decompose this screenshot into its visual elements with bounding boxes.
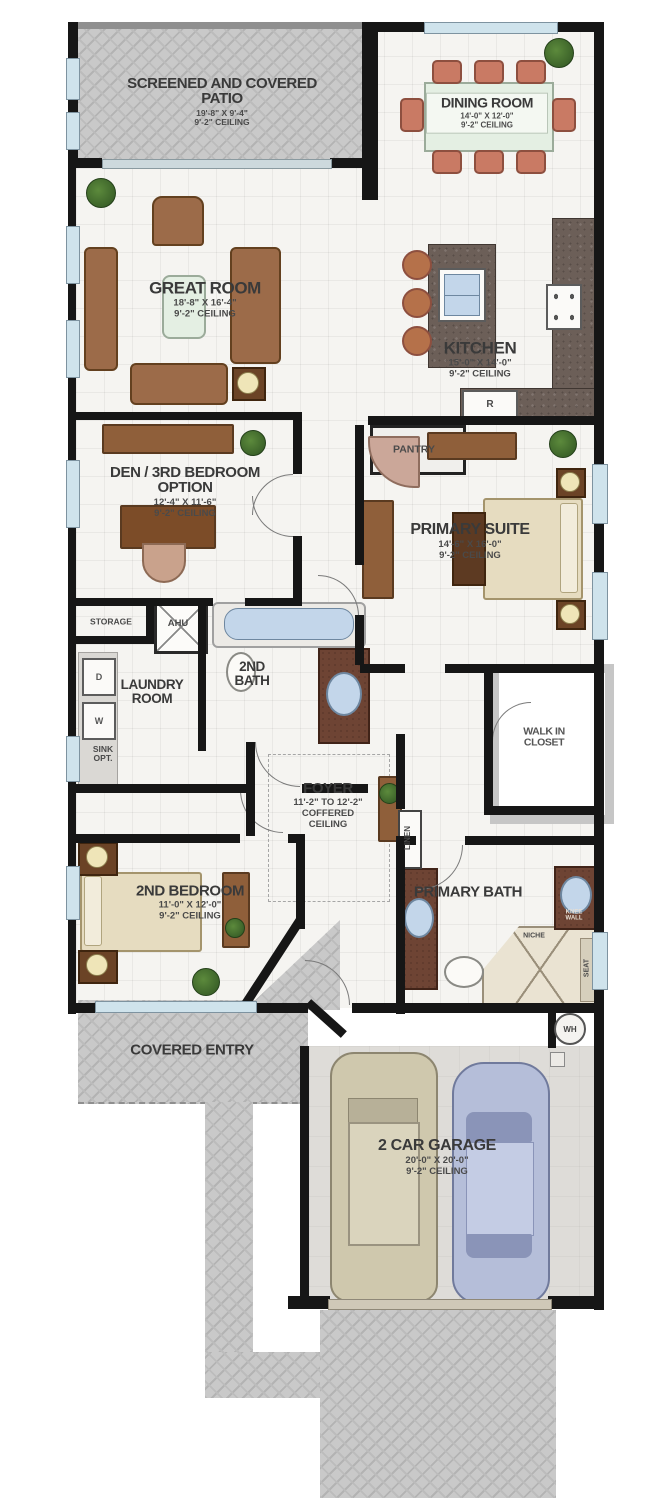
bedroom2-lamp — [86, 846, 108, 868]
driveway — [320, 1310, 556, 1498]
refrigerator-label: R — [486, 400, 493, 411]
patio-window-2 — [66, 112, 80, 150]
garage-label: 2 CAR GARAGE 20'-0" X 20'-0" 9'-2" CEILI… — [378, 1138, 496, 1178]
wall-primary-bottom-a — [360, 664, 405, 673]
dining-ceiling: 9'-2" CEILING — [427, 121, 547, 130]
primary-lamp — [560, 472, 580, 492]
den-ceiling: 9'-2" CEILING — [95, 508, 275, 519]
patio-window-1 — [66, 58, 80, 100]
second-bath-name: 2ND BATH — [220, 660, 284, 688]
primary-bath-name: PRIMARY BATH — [413, 884, 523, 899]
laundry-name: LAUNDRY ROOM — [105, 678, 200, 706]
wall-den-right-a — [293, 412, 302, 474]
dining-chair — [400, 98, 424, 132]
wall-closet-bottom — [484, 806, 603, 815]
primary-dresser — [427, 432, 517, 460]
den-window — [66, 460, 80, 528]
wall-front-b — [352, 1003, 602, 1013]
plant — [86, 178, 116, 208]
bedroom2-pillows — [84, 876, 102, 946]
great-room-ceiling: 9'-2" CEILING — [149, 310, 261, 321]
wall-bedroom-right — [296, 834, 305, 929]
car-sedan-rear-window — [466, 1234, 532, 1258]
dining-chair — [432, 150, 462, 174]
primary-console — [362, 500, 394, 599]
primarybath-window — [592, 932, 608, 990]
patio-sliding-door — [102, 159, 332, 169]
patio-label: SCREENED AND COVERED PATIO 19'-8" X 9'-4… — [117, 76, 327, 128]
wall-den-top — [68, 412, 301, 420]
primarybath-sink-left — [404, 898, 434, 938]
foyer-label: FOYER 11'-2" TO 12'-2" COFFERED CEILING — [273, 781, 383, 831]
den-credenza — [102, 424, 234, 454]
great-window-1 — [66, 226, 80, 284]
walk-in-closet-name: WALK IN CLOSET — [514, 726, 574, 747]
wall-laundry-bottom — [68, 784, 206, 793]
dryer-label: D — [96, 672, 103, 682]
great-sofa-left — [84, 247, 118, 371]
ahu-label: AHU — [168, 619, 189, 629]
wall-patio-stub-right — [330, 158, 378, 168]
kitchen-sink — [438, 268, 486, 322]
patio-screen-wall — [76, 22, 366, 29]
dining-chair — [474, 60, 504, 84]
great-lamp — [237, 372, 259, 394]
great-window-2 — [66, 320, 80, 378]
washer-label: W — [95, 716, 104, 726]
den-name: DEN / 3RD BEDROOM OPTION — [95, 465, 275, 496]
dining-window — [424, 22, 558, 34]
dining-dims: 14'-0" X 12'-0" — [427, 112, 547, 121]
primary-suite-ceiling: 9'-2" CEILING — [410, 551, 529, 562]
great-armchair — [152, 196, 204, 246]
dining-chair — [552, 98, 576, 132]
patio-ceiling: 9'-2" CEILING — [117, 118, 327, 128]
dining-chair — [516, 150, 546, 174]
great-sofa-bottom — [130, 363, 228, 405]
wall-patio-dining — [362, 22, 378, 200]
wall-garage-left — [300, 1046, 309, 1302]
primarybath-sink-right — [560, 876, 592, 914]
garage-name: 2 CAR GARAGE — [378, 1138, 496, 1154]
wall-hall-primary-a — [355, 425, 364, 565]
plant — [544, 38, 574, 68]
plant — [192, 968, 220, 996]
pantry-label: PANTRY — [393, 444, 435, 455]
bedroom2-lamp — [86, 954, 108, 976]
den-label: DEN / 3RD BEDROOM OPTION 12'-4" X 11'-6"… — [95, 465, 275, 519]
wall-den-bottom-a — [68, 598, 213, 606]
wall-bedroom-top-a — [68, 834, 240, 843]
garage-ceiling: 9'-2" CEILING — [378, 1167, 496, 1178]
storage-label: STORAGE — [90, 618, 132, 627]
walkway-horizontal — [205, 1352, 322, 1398]
sink-basin — [444, 274, 480, 316]
wall-hall-primary-b — [355, 615, 364, 665]
wall-closet-left — [484, 673, 493, 813]
kitchen-stool — [402, 288, 432, 318]
garage-door — [328, 1299, 552, 1310]
washer: W — [82, 702, 116, 740]
primary-bath-label: PRIMARY BATH — [413, 884, 523, 899]
primary-window-2 — [592, 572, 608, 640]
kitchen-name: KITCHEN — [444, 339, 517, 356]
primary-suite-label: PRIMARY SUITE 14'-6" X 16'-0" 9'-2" CEIL… — [410, 522, 529, 562]
covered-entry-label: COVERED ENTRY — [130, 1042, 253, 1057]
floor-plan: R D W WH — [0, 0, 669, 1500]
wall-garage-stub-left — [288, 1296, 330, 1309]
great-room-name: GREAT ROOM — [149, 279, 261, 296]
wall-kitchen-bottom — [368, 416, 602, 425]
wall-storage-bottom — [76, 636, 154, 644]
toilet-primary-bath — [444, 956, 484, 988]
wall-primarybath-left — [396, 838, 405, 1014]
wall-foyer-right-a — [396, 734, 405, 809]
dining-label: DINING ROOM 14'-0" X 12'-0" 9'-2" CEILIN… — [426, 93, 548, 134]
laundry-window — [66, 736, 80, 782]
wall-foyer-left — [246, 742, 255, 836]
wall-primarybath-top-b — [465, 836, 603, 845]
wall-den-bottom-b — [245, 598, 301, 606]
kitchen-stove — [546, 284, 582, 330]
dining-name: DINING ROOM — [427, 96, 547, 110]
column-post — [550, 1052, 565, 1067]
laundry-label: LAUNDRY ROOM — [105, 678, 200, 706]
kitchen-label: KITCHEN 15'-0" X 14'-0" 9'-2" CEILING — [444, 339, 517, 380]
seat-label: SEAT — [583, 959, 590, 977]
great-room-label: GREAT ROOM 18'-8" X 16'-4" 9'-2" CEILING — [149, 279, 261, 320]
plant — [240, 430, 266, 456]
dining-chair — [516, 60, 546, 84]
kitchen-stool — [402, 326, 432, 356]
dining-chair — [474, 150, 504, 174]
wall-primary-bottom-b — [445, 664, 603, 673]
second-bedroom-ceiling: 9'-2" CEILING — [136, 912, 244, 923]
water-heater: WH — [554, 1013, 586, 1045]
primary-bed-pillows — [560, 503, 578, 593]
wall-garage-stub-right — [548, 1296, 602, 1309]
sink-2nd-bath — [326, 672, 362, 716]
bedroom2-window-front — [95, 1001, 257, 1013]
kitchen-ceiling: 9'-2" CEILING — [444, 370, 517, 381]
covered-entry-name: COVERED ENTRY — [130, 1042, 253, 1057]
patio-name: SCREENED AND COVERED PATIO — [117, 76, 327, 107]
wall-den-right-b — [293, 536, 302, 606]
knee-wall-label: KNEE WALL — [560, 910, 588, 923]
foyer-name: FOYER — [273, 781, 383, 796]
primary-suite-name: PRIMARY SUITE — [410, 522, 529, 538]
plant — [549, 430, 577, 458]
linen-label: LINEN — [404, 826, 412, 850]
walk-in-closet-label: WALK IN CLOSET — [514, 726, 574, 747]
primary-window-1 — [592, 464, 608, 524]
dining-chair — [432, 60, 462, 84]
second-bath-label: 2ND BATH — [220, 660, 284, 688]
kitchen-stool — [402, 250, 432, 280]
water-heater-label: WH — [563, 1025, 576, 1034]
sink-opt-label: SINK OPT. — [86, 745, 120, 763]
second-bedroom-label: 2ND BEDROOM 11'-0" X 12'-0" 9'-2" CEILIN… — [136, 883, 244, 922]
foyer-ceiling: COFFERED CEILING — [293, 809, 363, 831]
den-dims: 12'-4" X 11'-6" — [95, 497, 275, 508]
car-suv-windshield — [348, 1098, 418, 1124]
wall-patio-stub-left — [68, 158, 102, 168]
primary-lamp — [560, 604, 580, 624]
bedroom2-window-left — [66, 866, 80, 920]
niche-label: NICHE — [523, 932, 545, 939]
second-bedroom-name: 2ND BEDROOM — [136, 883, 244, 898]
